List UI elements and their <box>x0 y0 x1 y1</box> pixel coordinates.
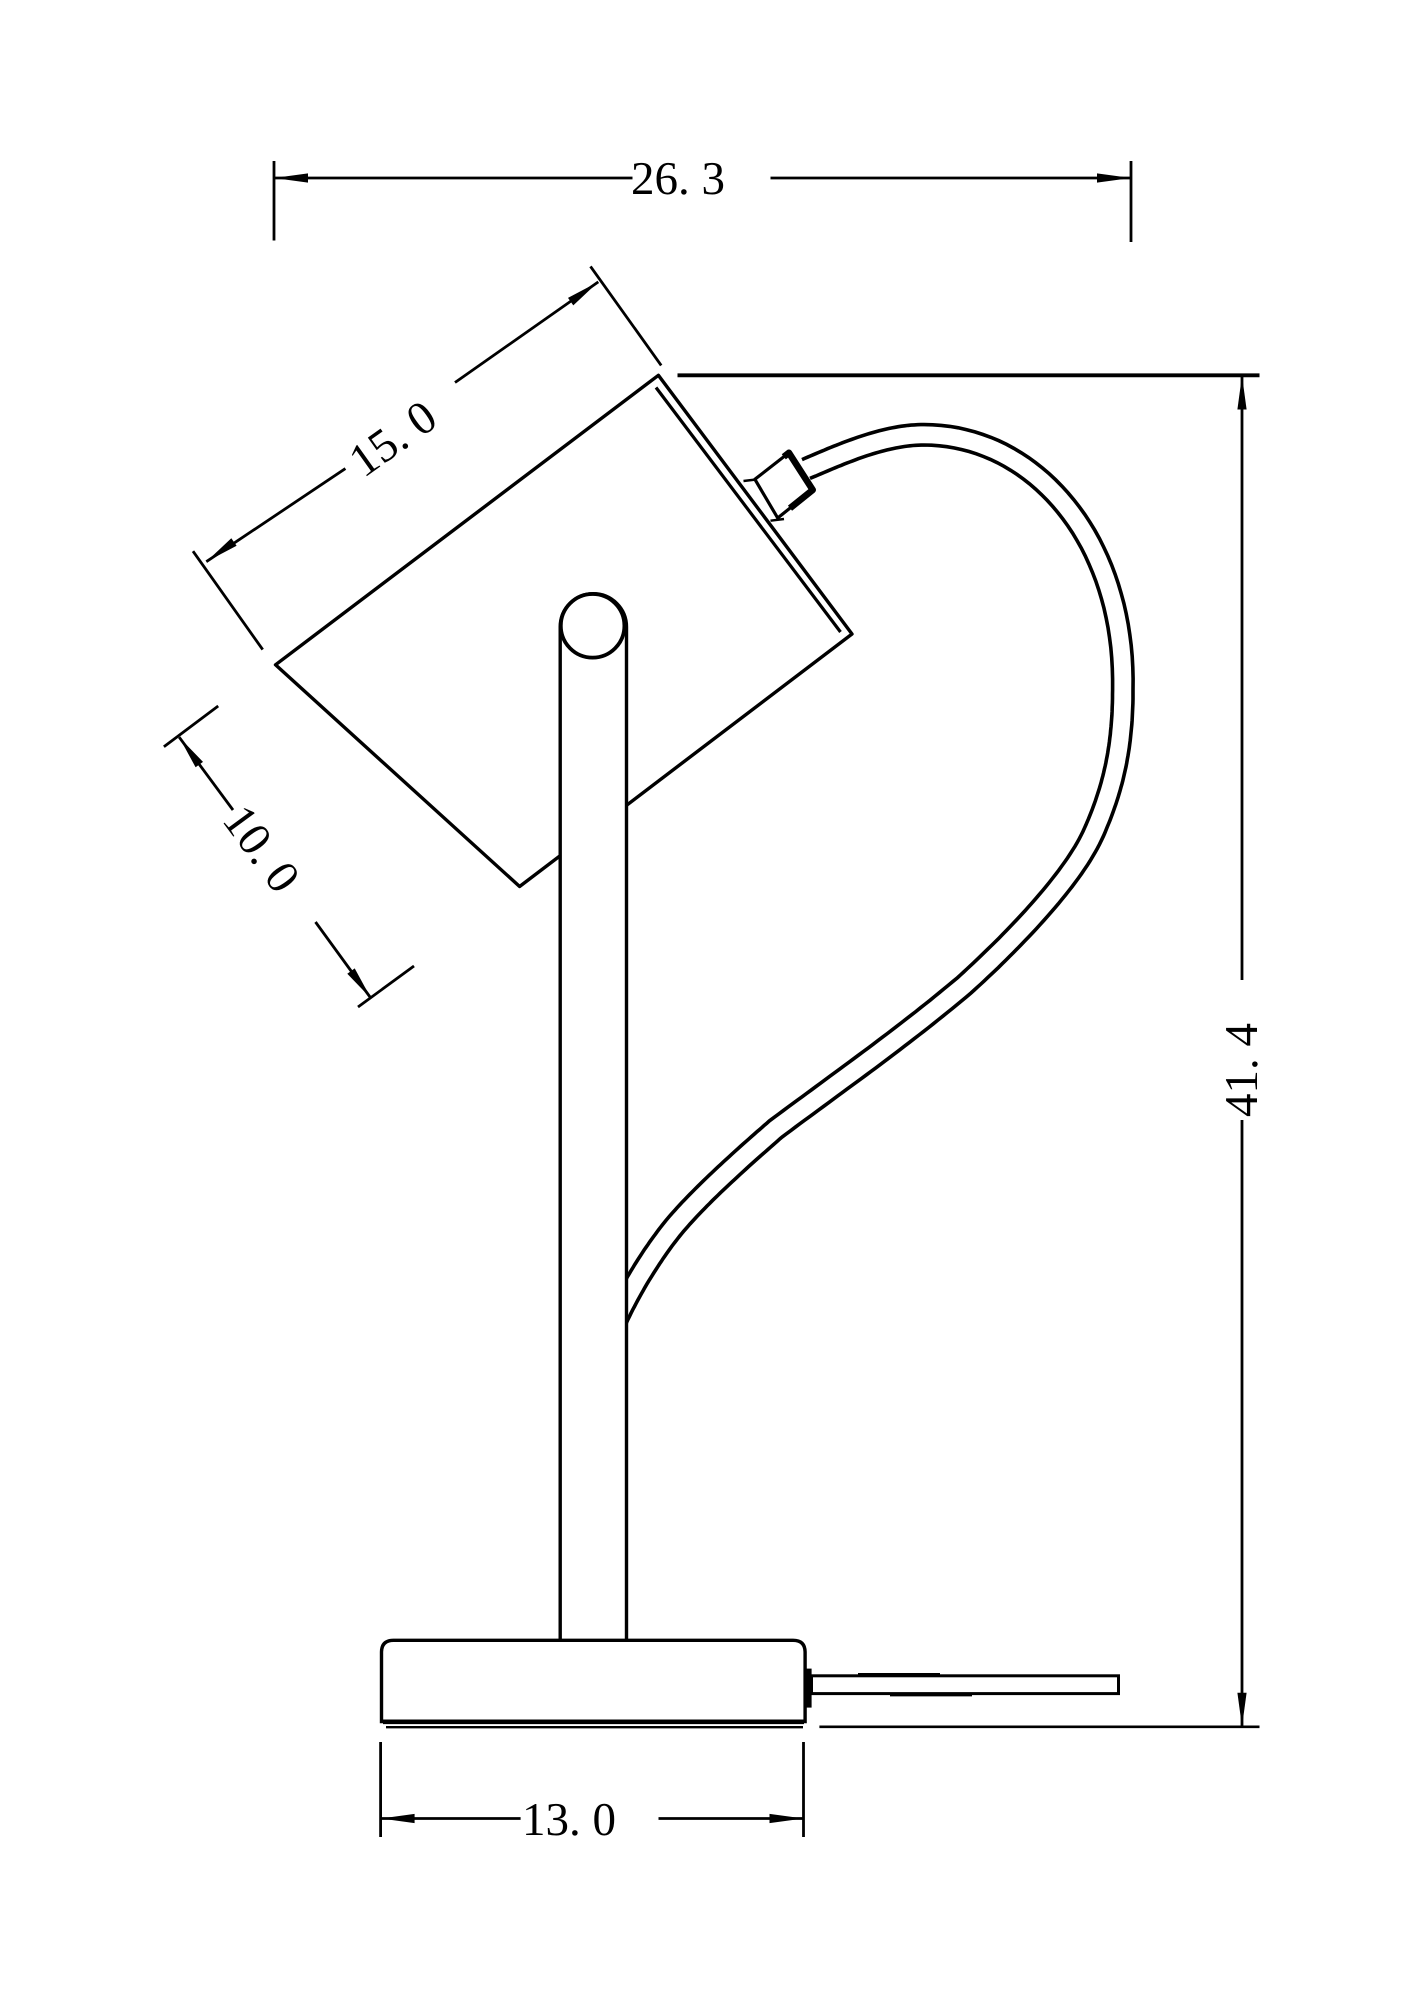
svg-text:10. 0: 10. 0 <box>212 796 310 903</box>
svg-text:41. 4: 41. 4 <box>1216 1023 1268 1117</box>
svg-text:13. 0: 13. 0 <box>522 1794 616 1846</box>
svg-text:26. 3: 26. 3 <box>631 153 725 205</box>
svg-text:15. 0: 15. 0 <box>340 391 447 488</box>
